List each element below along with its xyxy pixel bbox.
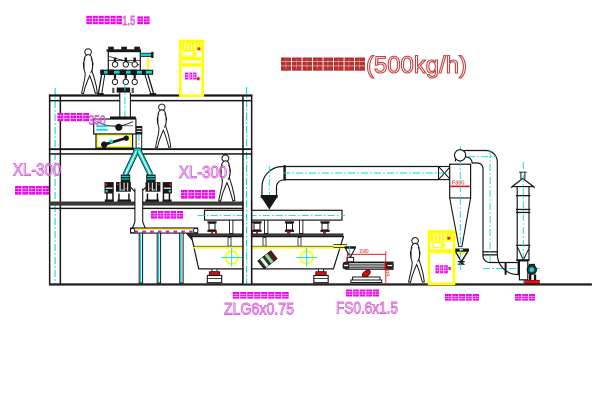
svg-text:ZLG6x0.75: ZLG6x0.75 [224, 301, 294, 319]
svg-text:XL-300: XL-300 [13, 160, 61, 180]
svg-text:540: 540 [385, 268, 391, 276]
svg-text:1500: 1500 [359, 249, 369, 255]
svg-text:F800: F800 [452, 181, 465, 187]
svg-text:FS0.6x1.5: FS0.6x1.5 [336, 300, 398, 318]
svg-text:XL-300: XL-300 [179, 162, 227, 182]
svg-text:350: 350 [89, 112, 106, 127]
svg-text:(500kg/h): (500kg/h) [366, 52, 467, 79]
svg-text:1.5: 1.5 [122, 13, 135, 28]
